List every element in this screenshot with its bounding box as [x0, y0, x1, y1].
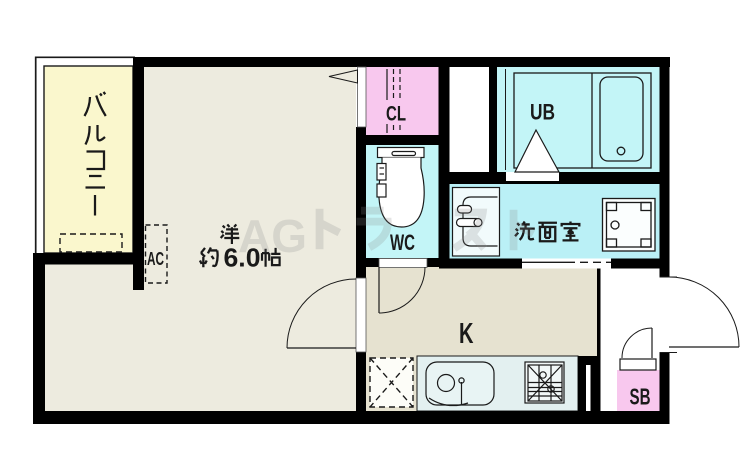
svg-text:AG: AG: [238, 210, 307, 262]
svg-text:CL: CL: [386, 102, 406, 126]
svg-text:UB: UB: [530, 100, 555, 125]
svg-text:SB: SB: [630, 384, 651, 410]
svg-text:AC: AC: [147, 249, 164, 269]
svg-text:WC: WC: [390, 230, 415, 255]
svg-text:K: K: [459, 318, 474, 350]
